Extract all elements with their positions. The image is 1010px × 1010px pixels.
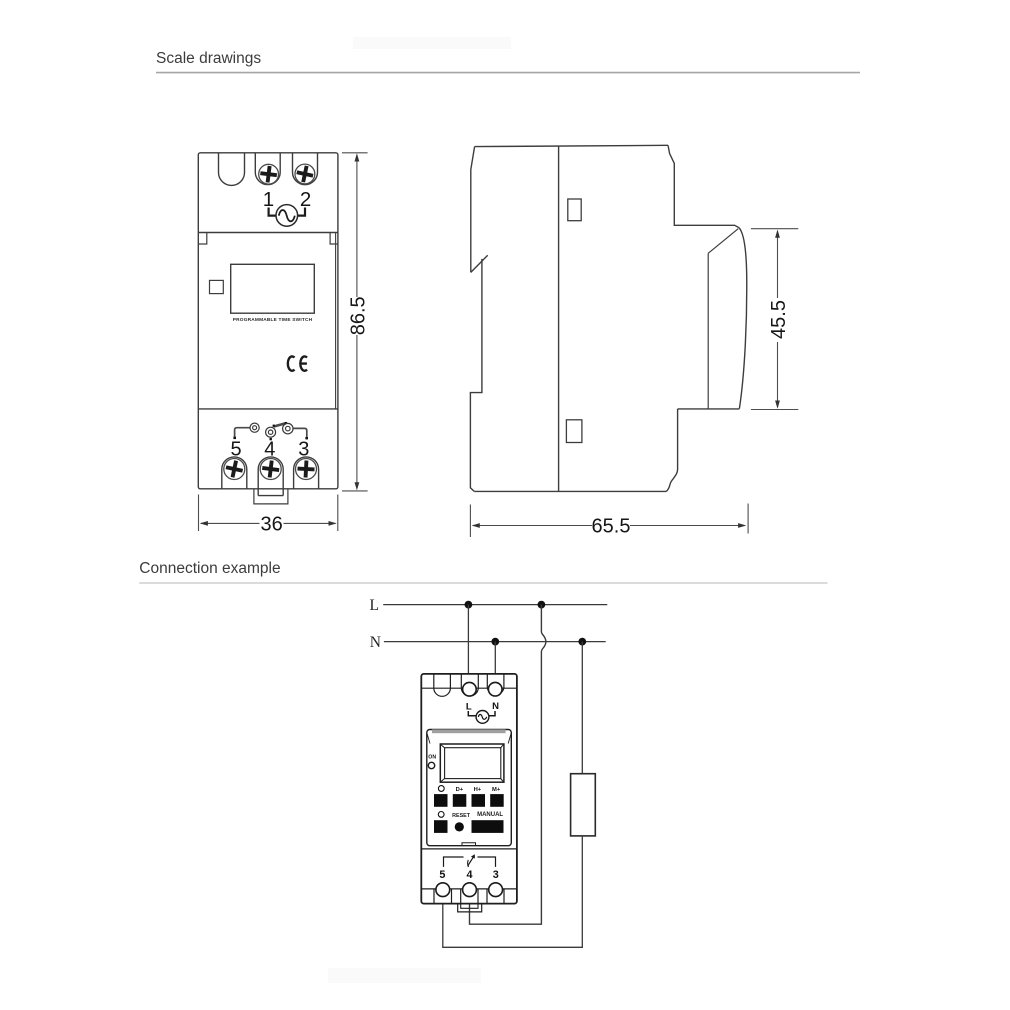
svg-text:PROGRAMMABLE TIME SWITCH: PROGRAMMABLE TIME SWITCH: [233, 317, 313, 323]
svg-text:M+: M+: [492, 787, 501, 793]
svg-text:65.5: 65.5: [592, 515, 631, 537]
svg-text:5: 5: [439, 869, 445, 881]
svg-text:4: 4: [264, 439, 275, 461]
svg-text:N: N: [370, 634, 381, 651]
svg-text:L: L: [466, 702, 472, 713]
svg-text:H+: H+: [474, 787, 482, 793]
svg-text:3: 3: [493, 869, 499, 881]
svg-text:D+: D+: [456, 787, 464, 793]
svg-text:36: 36: [260, 514, 282, 536]
svg-text:RESET: RESET: [452, 813, 471, 819]
svg-text:Scale drawings: Scale drawings: [156, 50, 261, 67]
svg-text:L: L: [370, 597, 379, 614]
svg-text:ON: ON: [428, 754, 436, 760]
svg-text:MANUAL: MANUAL: [477, 812, 503, 818]
svg-text:N: N: [492, 701, 499, 712]
svg-text:4: 4: [466, 869, 472, 881]
svg-text:86.5: 86.5: [348, 296, 370, 335]
svg-text:45.5: 45.5: [768, 300, 790, 339]
svg-text:5: 5: [230, 439, 241, 461]
svg-text:3: 3: [298, 439, 309, 461]
svg-text:Connection example: Connection example: [139, 560, 280, 577]
